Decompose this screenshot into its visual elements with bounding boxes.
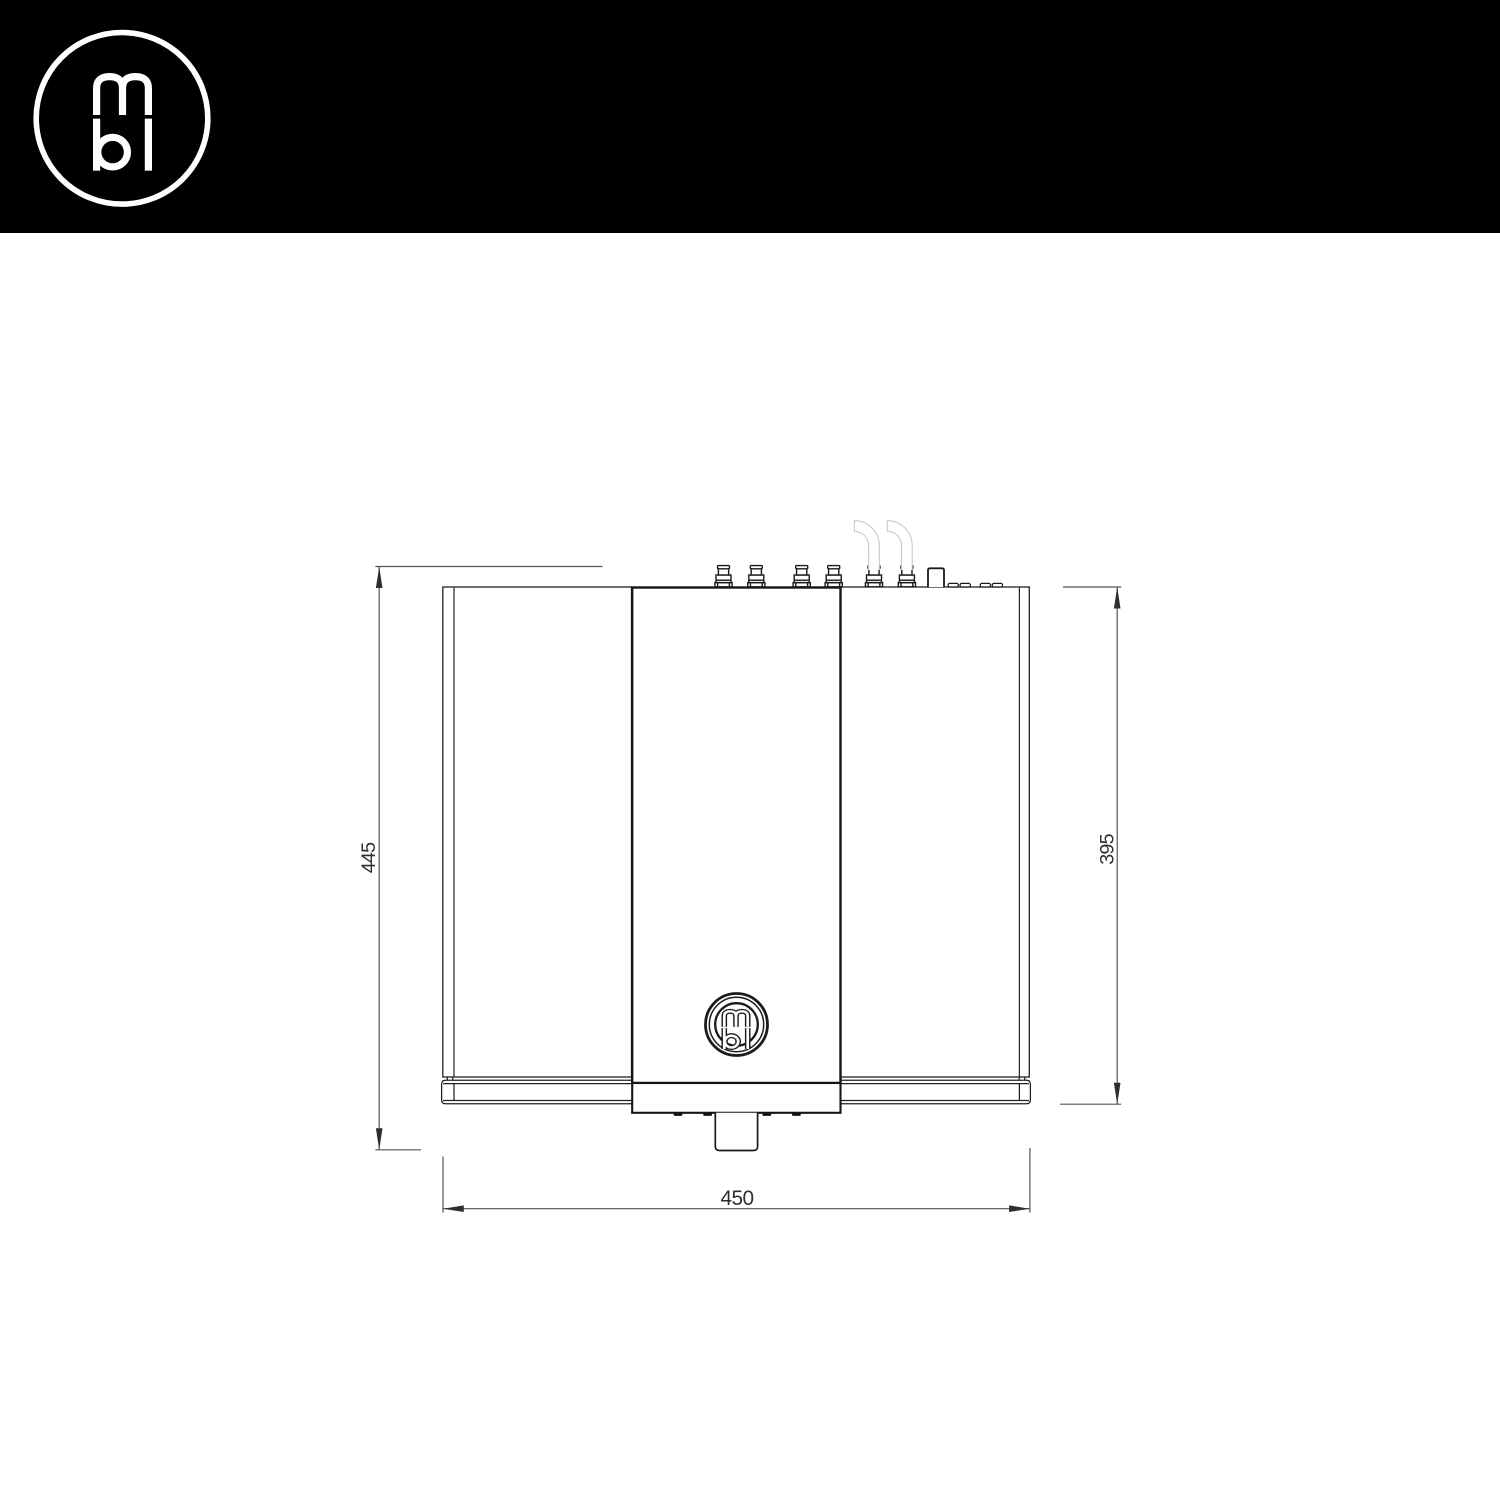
svg-text:445: 445 bbox=[358, 842, 380, 873]
svg-text:395: 395 bbox=[1096, 833, 1118, 864]
svg-text:450: 450 bbox=[721, 1187, 754, 1210]
